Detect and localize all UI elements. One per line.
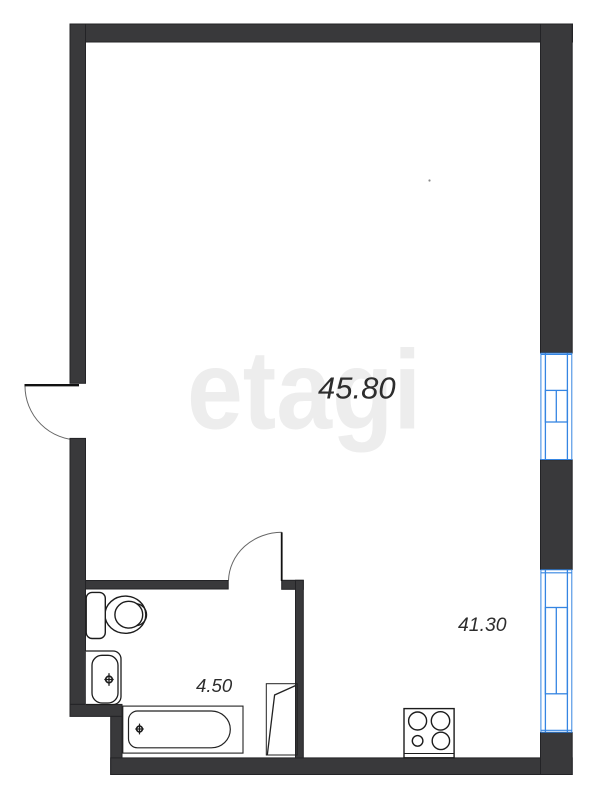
svg-text:45.80: 45.80 [318,370,396,405]
svg-text:41.30: 41.30 [458,614,507,636]
svg-text:4.50: 4.50 [196,675,233,696]
